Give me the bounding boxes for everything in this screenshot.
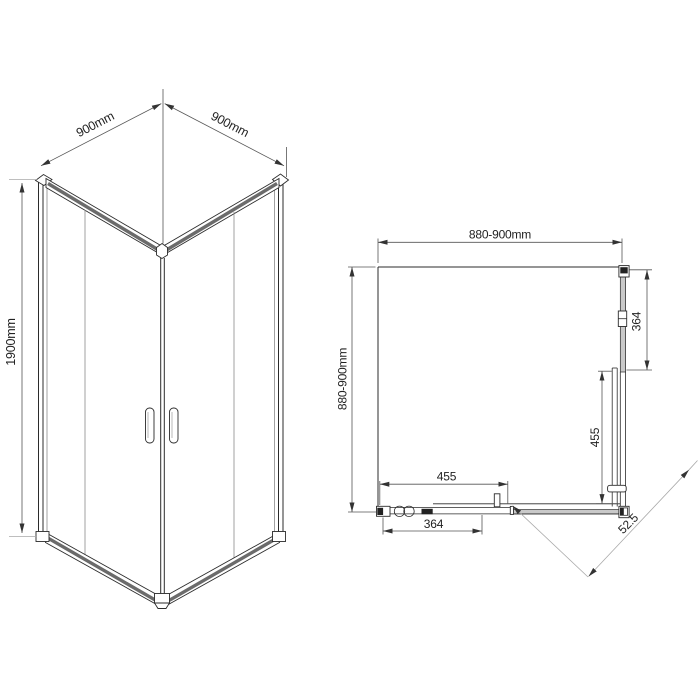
dim-height-label: 1900mm [4, 318, 18, 365]
dim-bottom-door-label: 455 [437, 470, 457, 484]
entry-swing-line [513, 506, 589, 577]
isometric-view [36, 174, 289, 609]
right-door-handle-icon [170, 408, 179, 443]
plan-bottom-side [377, 494, 621, 517]
dim-plan-depth-label: 880-900mm [336, 348, 350, 410]
bottom-fixed-panel [513, 510, 620, 514]
left-wall-foot [36, 532, 49, 542]
right-wall-profile [273, 174, 289, 536]
technical-drawing: 900mm 900mm 1900mm [0, 0, 700, 700]
plan-view [377, 266, 630, 518]
dim-line-entry [589, 470, 690, 577]
dim-bottom-panel-label: 364 [424, 517, 444, 531]
corner-joint [157, 244, 168, 259]
dim-top-right-label: 900mm [209, 109, 252, 140]
dim-right-door-label: 455 [588, 427, 602, 447]
dim-right-panel-label: 364 [630, 311, 644, 331]
bottom-door-handle-icon [494, 494, 500, 507]
dim-plan-width-label: 880-900mm [469, 228, 531, 242]
right-door-handle-icon [608, 485, 627, 492]
bottom-door-end-cap [510, 506, 513, 514]
plan-dimensions: 880-900mm 880-900mm 364 455 455 364 52.5 [336, 228, 698, 578]
isometric-dimensions: 900mm 900mm 1900mm [4, 89, 287, 537]
dim-top-left-label: 900mm [74, 109, 117, 140]
top-right-corner-bracket [619, 266, 629, 277]
plan-right-side [608, 266, 630, 518]
left-door-handle-icon [146, 408, 155, 443]
front-corner-foot [155, 594, 170, 609]
left-wall-profile [36, 175, 53, 537]
bottom-door-bracket [422, 509, 433, 514]
right-wall-foot [273, 532, 286, 542]
front-corner-post [157, 244, 168, 595]
